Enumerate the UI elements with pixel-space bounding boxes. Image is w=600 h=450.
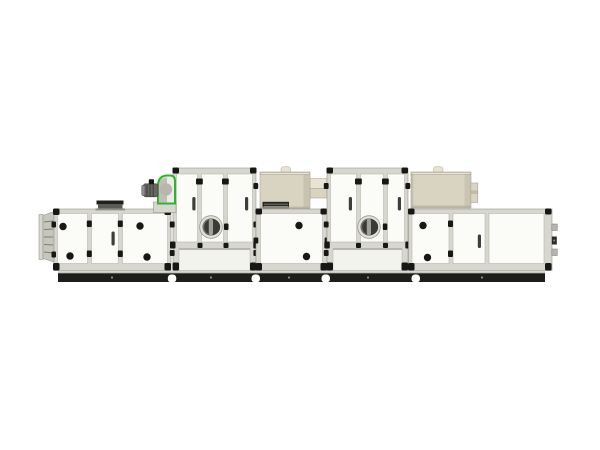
cassette-2-left-edge bbox=[411, 172, 413, 208]
inspection-porthole-2 bbox=[358, 216, 381, 239]
cassette-2-body bbox=[411, 172, 471, 208]
hood-top bbox=[97, 201, 124, 205]
module-1-filter-section bbox=[52, 201, 172, 271]
module-4-door-3 bbox=[388, 174, 405, 242]
module-2-lower-shadow bbox=[179, 249, 250, 250]
fan-motor bbox=[144, 184, 159, 197]
fan-assembly bbox=[142, 176, 176, 213]
module-3-door bbox=[261, 214, 323, 264]
porthole-slat bbox=[209, 219, 213, 235]
rotor-cassette-2 bbox=[411, 167, 478, 209]
module-5-door-3 bbox=[489, 214, 544, 264]
module-4-tall-section bbox=[324, 168, 411, 271]
rotor-cassette-1 bbox=[260, 167, 327, 209]
porthole-slat bbox=[367, 219, 371, 235]
module-4-lower-shadow bbox=[333, 249, 402, 250]
inspection-porthole-1 bbox=[200, 216, 223, 239]
roof-vent-hood bbox=[96, 201, 126, 211]
cassette-2-edge-shade bbox=[465, 173, 471, 208]
module-5-right-section bbox=[408, 209, 557, 271]
flange-lip bbox=[39, 215, 43, 260]
fan-motor-cap bbox=[142, 185, 145, 195]
porthole-2-latch bbox=[383, 224, 388, 231]
side-fitting-upper bbox=[552, 224, 558, 231]
base-rail bbox=[58, 271, 545, 282]
cassette-2-tab-notch bbox=[471, 191, 478, 195]
hood-base bbox=[96, 208, 126, 210]
cassette-2-top-highlight bbox=[412, 172, 471, 174]
product-photo-stage bbox=[0, 0, 600, 450]
module-3-mid-section bbox=[254, 209, 330, 271]
air-handling-unit-photo bbox=[0, 0, 600, 450]
module-2-door-3 bbox=[228, 174, 253, 242]
module-1-door-handle bbox=[112, 232, 115, 246]
cassette-1-edge-shade bbox=[304, 173, 310, 209]
porthole-1-latch bbox=[224, 224, 229, 231]
module-4-lower-panel bbox=[333, 249, 402, 271]
cassette-1-duct-bottom bbox=[310, 189, 327, 199]
cassette-1-top-highlight bbox=[261, 172, 310, 174]
side-fitting-dot bbox=[553, 240, 555, 242]
module-5-door-handle bbox=[478, 235, 481, 249]
fan-junction-box bbox=[149, 179, 154, 184]
base-rail-top-edge bbox=[58, 271, 545, 273]
module-2-tall-section bbox=[170, 168, 259, 271]
module-2-lower-panel bbox=[179, 249, 250, 271]
base-rail-body bbox=[58, 273, 545, 282]
module-4-door-1 bbox=[331, 174, 357, 242]
cassette-2-drop-shadow bbox=[411, 206, 471, 209]
side-fitting-lower bbox=[552, 249, 558, 256]
module-5-side-fittings bbox=[552, 224, 558, 256]
fan-scroll-hub bbox=[160, 183, 172, 195]
